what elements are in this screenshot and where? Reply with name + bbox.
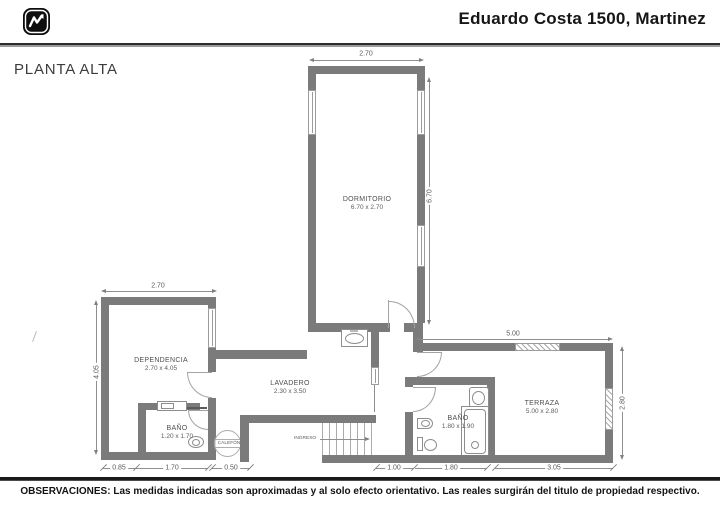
- stray-mark: [32, 331, 37, 342]
- dim-label: 1.80: [442, 465, 460, 472]
- room-label-dormitorio: DORMITORIO 6.70 x 2.70: [343, 196, 391, 212]
- wall: [308, 66, 425, 74]
- toilet-tank: [417, 437, 423, 451]
- dim-label: 5.00: [504, 331, 522, 338]
- room-label-banio-1: BAÑO 1.20 x 1.70: [161, 425, 193, 441]
- dim-label: 0.85: [110, 465, 128, 472]
- wall: [101, 297, 109, 460]
- dim-line: [419, 339, 608, 340]
- toilet: [424, 439, 437, 451]
- dim-tick: [247, 464, 254, 471]
- laundry-basin: [345, 333, 364, 344]
- door-arc: [187, 372, 212, 398]
- ingreso-arrow-line: [320, 439, 365, 440]
- observations-text: OBSERVACIONES: Las medidas indicadas son…: [0, 486, 720, 497]
- ingreso-label: INGRESO: [294, 436, 316, 441]
- wall: [240, 415, 249, 462]
- dim-arrow: [414, 337, 419, 341]
- wall: [208, 398, 216, 460]
- wall: [405, 377, 495, 385]
- window: [417, 225, 425, 267]
- window: [371, 367, 379, 385]
- room-label-lavadero: LAVADERO 2.30 x 3.50: [270, 380, 310, 396]
- counter-line: [187, 407, 207, 409]
- terrace-window: [605, 388, 613, 430]
- dim-arrow: [608, 337, 613, 341]
- dim-arrow: [427, 77, 431, 82]
- window: [308, 90, 316, 135]
- dim-line: [314, 60, 419, 61]
- ingreso-arrowhead: [365, 437, 370, 441]
- dim-tick: [610, 464, 617, 471]
- room-label-terraza: TERRAZA 5.00 x 2.80: [525, 400, 560, 416]
- partition-line: [374, 385, 375, 412]
- dim-arrow: [427, 320, 431, 325]
- wall: [405, 377, 413, 387]
- wall: [208, 297, 216, 308]
- bidet-basin: [421, 420, 430, 427]
- dim-line: [106, 291, 212, 292]
- trend-logo-icon: [22, 7, 51, 36]
- dim-arrow: [419, 58, 424, 62]
- dim-label: 1.00: [385, 465, 403, 472]
- window: [417, 90, 425, 135]
- dim-label: 1.70: [163, 465, 181, 472]
- door-arc: [413, 387, 436, 412]
- dim-label: 0.50: [222, 465, 240, 472]
- toilet-bowl: [192, 439, 200, 446]
- page-title: Eduardo Costa 1500, Martinez: [459, 9, 706, 29]
- dim-arrow: [309, 58, 314, 62]
- wall: [101, 452, 212, 460]
- wall: [208, 350, 307, 359]
- vanity-basin: [161, 403, 174, 409]
- footer-divider: [0, 477, 720, 481]
- dim-label: 2.80: [620, 394, 627, 412]
- dim-arrow: [94, 450, 98, 455]
- dim-tick: [484, 464, 491, 471]
- brand-logo: [22, 7, 51, 36]
- faucet-mark: [350, 330, 358, 332]
- dim-label: 3.05: [545, 465, 563, 472]
- dim-arrow: [101, 289, 106, 293]
- window: [208, 308, 216, 348]
- wall: [371, 332, 379, 367]
- dim-arrow: [94, 300, 98, 305]
- door-arc: [417, 352, 442, 377]
- terrace-window: [515, 343, 560, 351]
- wall: [101, 297, 216, 305]
- dim-arrow: [212, 289, 217, 293]
- wall: [322, 455, 613, 463]
- wall: [240, 415, 376, 423]
- header-divider: [0, 43, 720, 47]
- room-label-banio-2: BAÑO 1.80 x 1.90: [442, 415, 474, 431]
- dim-label: 2.70: [357, 51, 375, 58]
- door-arc: [389, 301, 415, 328]
- dim-label: 4.05: [94, 363, 101, 381]
- room-label-dependencia: DEPENDENCIA 2.70 x 4.05: [134, 357, 188, 373]
- dim-label: 2.70: [149, 283, 167, 290]
- wall: [138, 403, 146, 454]
- bathtub-drain: [471, 441, 479, 449]
- floor-label: PLANTA ALTA: [14, 61, 118, 78]
- dim-label: 6.70: [427, 187, 434, 205]
- dim-arrow: [620, 346, 624, 351]
- bathroom-basin: [472, 391, 485, 405]
- dim-arrow: [620, 455, 624, 460]
